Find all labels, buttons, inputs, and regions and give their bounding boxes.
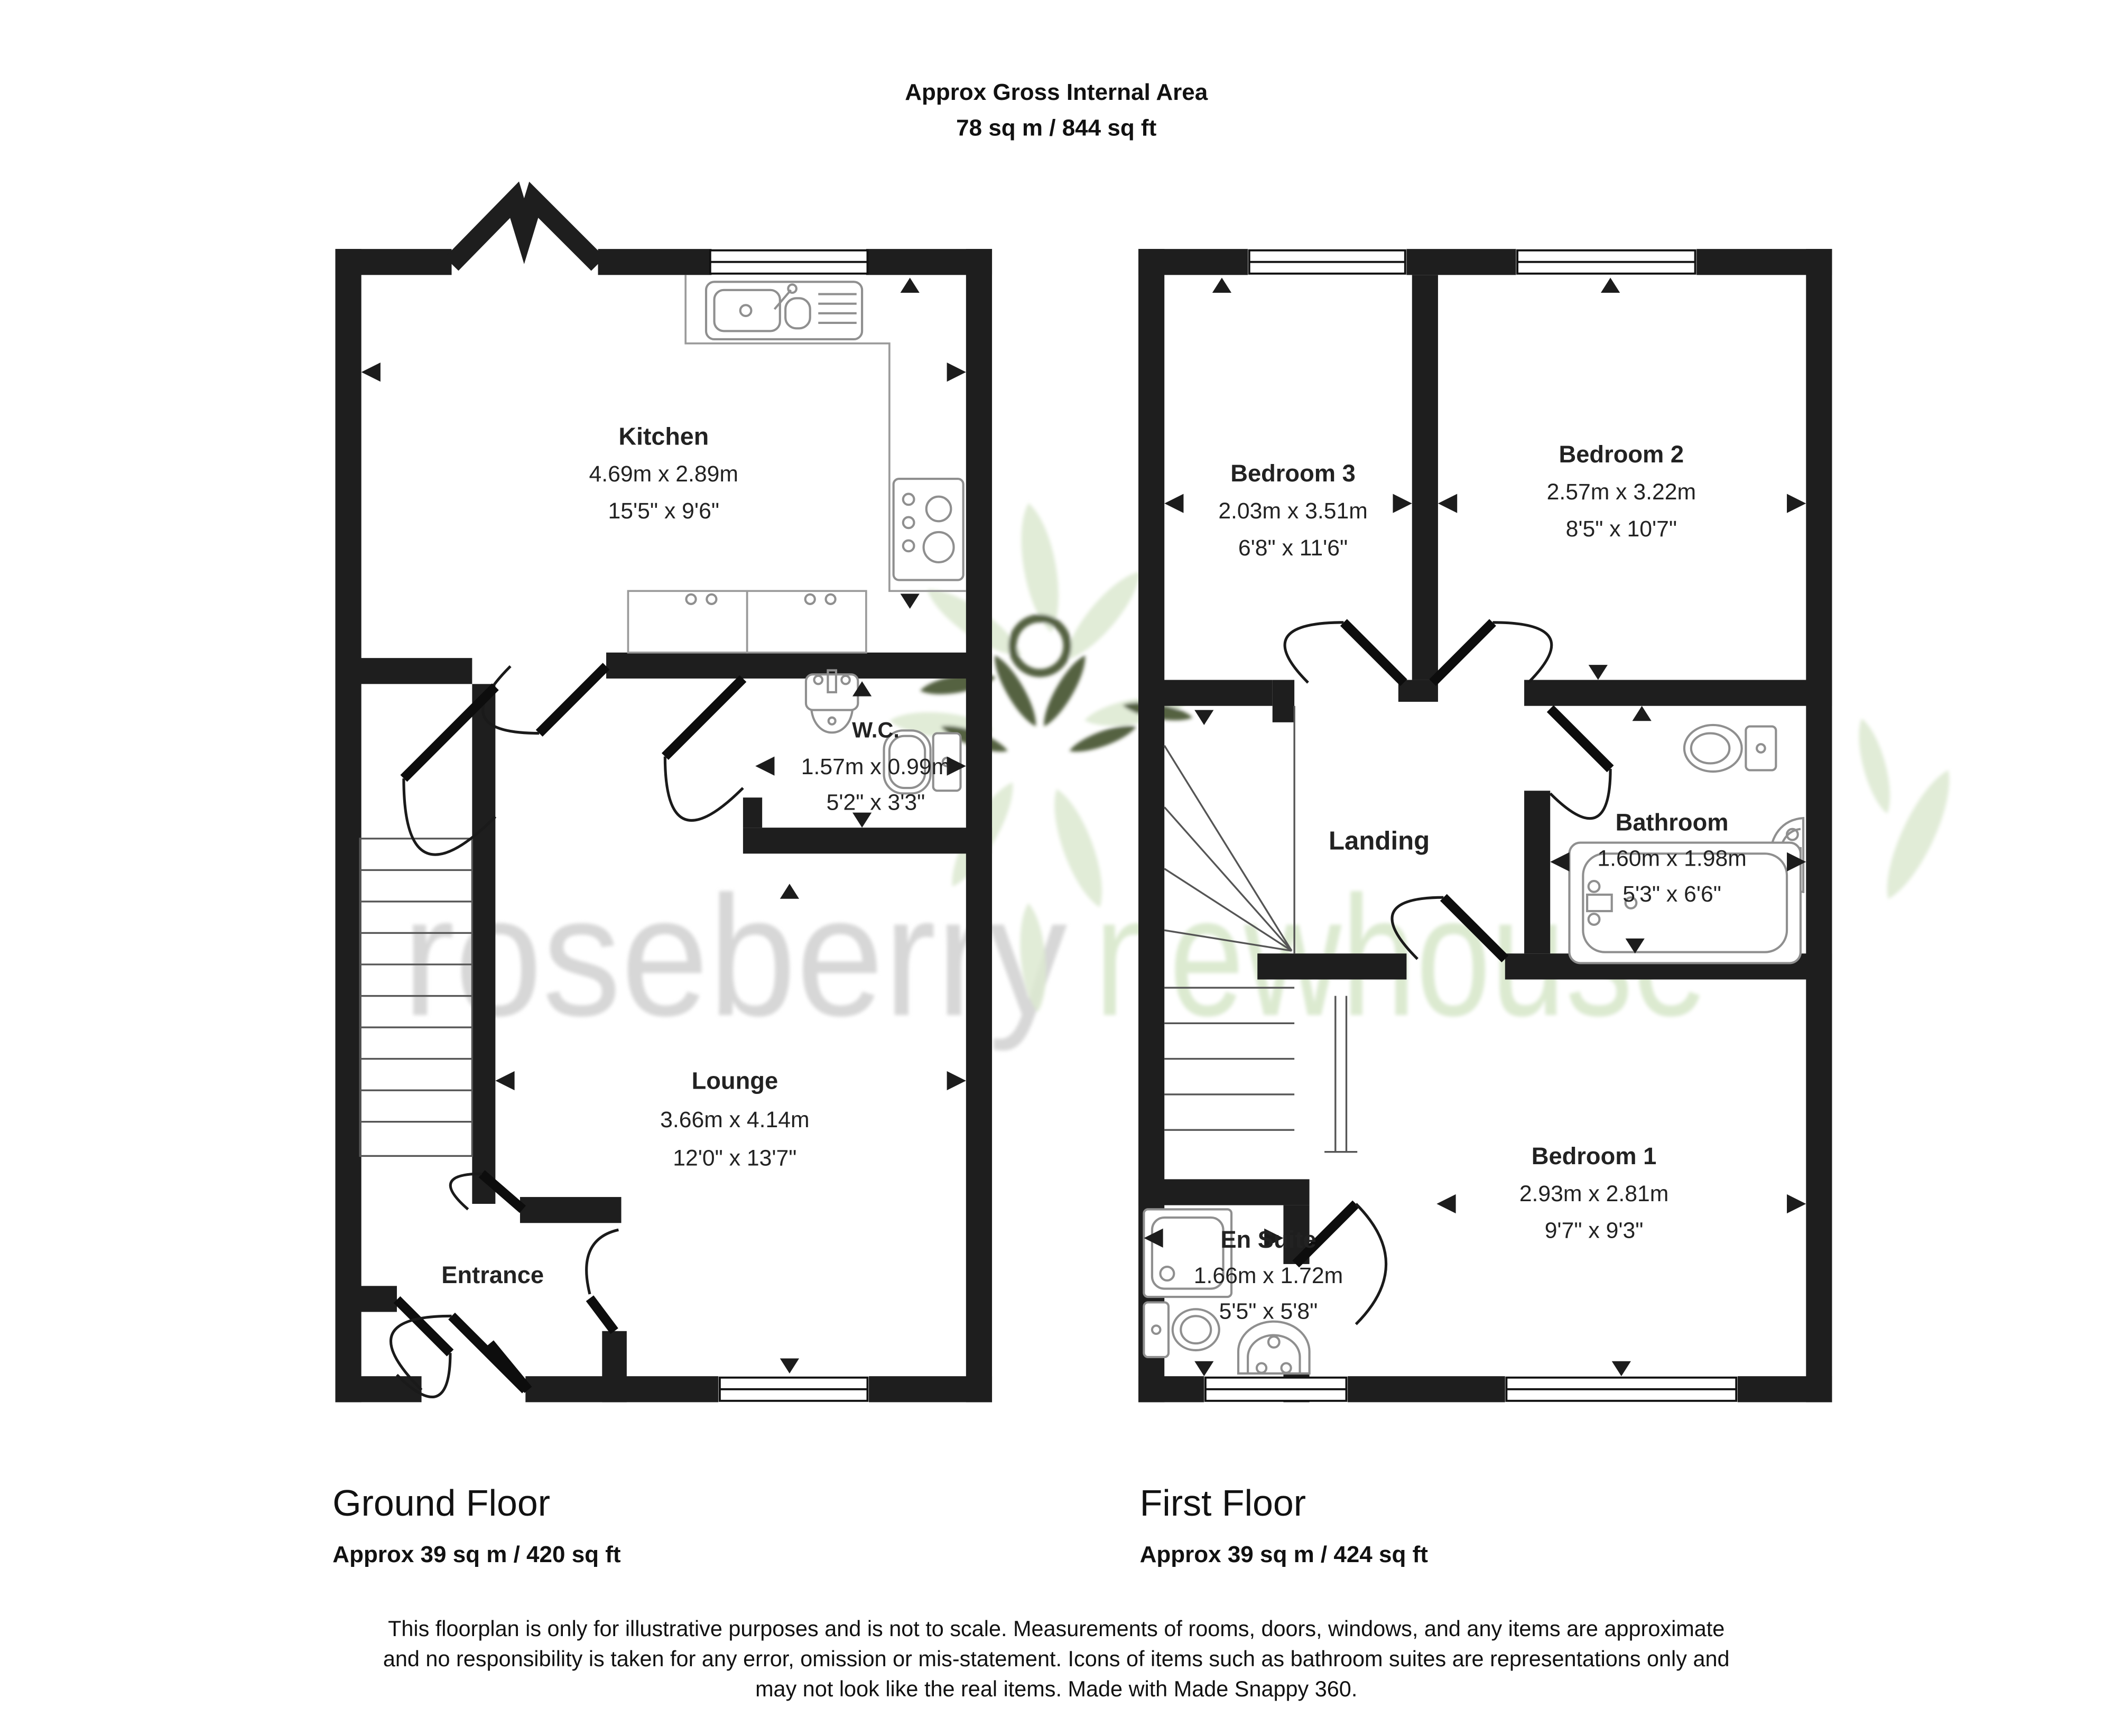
bedroom2-metric: 2.57m x 3.22m [1547,479,1696,505]
lounge-imperial: 12'0" x 13'7" [673,1146,796,1171]
bedroom3-label: Bedroom 3 [1230,460,1356,487]
gross-area-title: Approx Gross Internal Area [905,79,1208,105]
disclaimer-line-3: may not look like the real items. Made w… [755,1677,1357,1701]
ensuite-metric: 1.66m x 1.72m [1194,1263,1343,1288]
bedroom1-imperial: 9'7" x 9'3" [1545,1218,1644,1243]
gross-area-value: 78 sq m / 844 sq ft [956,115,1156,141]
wc-metric: 1.57m x 0.99m [801,754,950,779]
wc-label: W.C. [852,718,900,742]
bedroom3-imperial: 6'8" x 11'6" [1238,535,1348,561]
lounge-label: Lounge [692,1067,778,1094]
ground-floor-area: Approx 39 sq m / 420 sq ft [332,1542,621,1567]
window-icon [1249,250,1405,274]
first-floor-area: Approx 39 sq m / 424 sq ft [1140,1542,1429,1567]
basin-icon [1238,1322,1310,1373]
lounge-metric: 3.66m x 4.14m [660,1107,809,1132]
floorplan-canvas: roseberry newhouse Approx Gross Internal… [0,0,2114,1736]
window-icon [720,1378,868,1401]
kitchen-label: Kitchen [618,422,709,450]
ensuite-label: En Suite [1220,1226,1316,1253]
disclaimer-line-2: and no responsibility is taken for any e… [383,1647,1730,1671]
ground-floor-label: Ground Floor [332,1482,550,1524]
window-icon [1517,250,1695,274]
window-icon [710,250,868,274]
entrance-label: Entrance [441,1261,544,1288]
bathroom-imperial: 5'3" x 6'6" [1622,881,1721,907]
wc-imperial: 5'2" x 3'3" [827,790,925,815]
bedroom1-metric: 2.93m x 2.81m [1519,1181,1668,1206]
bathroom-metric: 1.60m x 1.98m [1597,846,1746,871]
bedroom3-metric: 2.03m x 3.51m [1218,498,1367,524]
window-icon [1206,1378,1347,1401]
sink-icon [706,282,862,339]
ensuite-imperial: 5'5" x 5'8" [1219,1298,1318,1324]
window-icon [1506,1378,1736,1401]
kitchen-metric: 4.69m x 2.89m [589,461,738,487]
bedroom2-imperial: 8'5" x 10'7" [1566,516,1677,542]
landing-label: Landing [1329,827,1430,856]
bathroom-label: Bathroom [1616,809,1729,835]
floorplan-page: roseberry newhouse Approx Gross Internal… [0,0,2114,1736]
kitchen-imperial: 15'5" x 9'6" [608,498,719,524]
toilet-icon [1684,725,1776,772]
bedroom1-label: Bedroom 1 [1532,1143,1657,1169]
bedroom2-label: Bedroom 2 [1559,441,1684,468]
hob-icon [894,479,963,580]
disclaimer-line-1: This floorplan is only for illustrative … [388,1617,1724,1641]
first-floor-label: First Floor [1140,1482,1306,1524]
